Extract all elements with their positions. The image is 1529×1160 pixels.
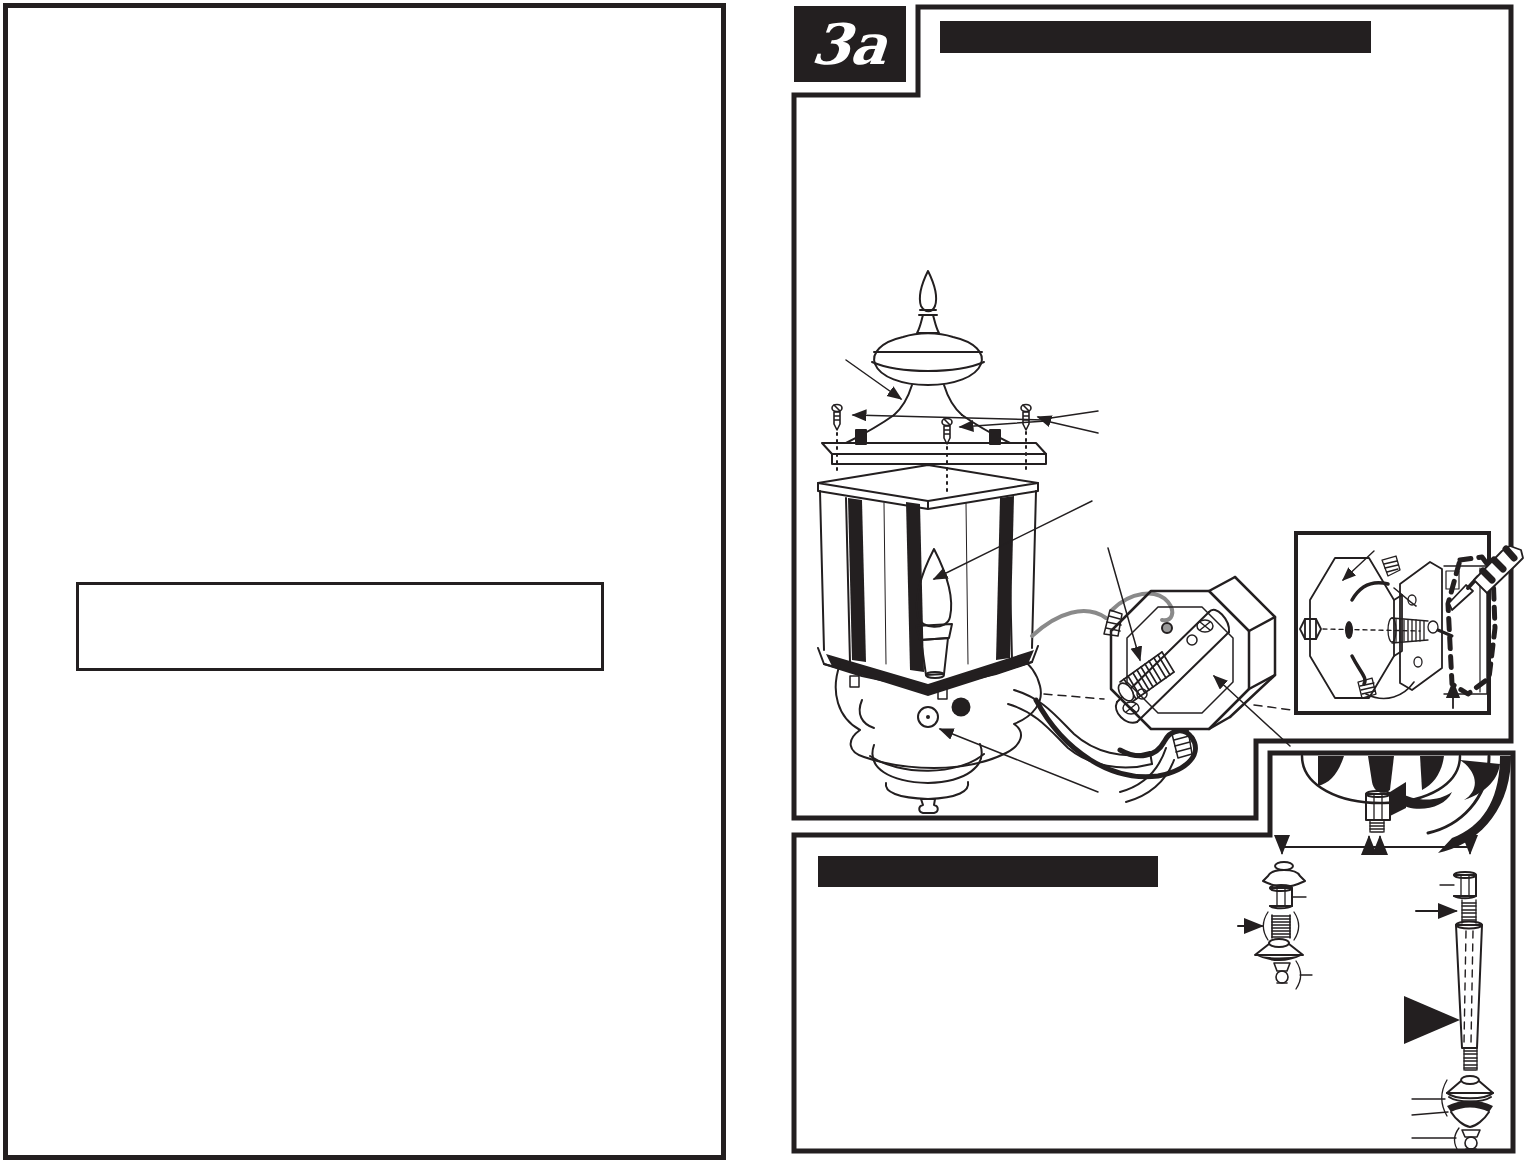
small-finial-icon xyxy=(1274,961,1312,989)
wire-hole xyxy=(952,698,971,717)
canopy-cap-icon xyxy=(1263,862,1305,887)
lantern-bottom-closeup-icon xyxy=(1302,756,1511,853)
step-badge: 3a xyxy=(794,6,906,82)
bottom-panel-border xyxy=(794,753,1513,1151)
stem-assembly-diagram xyxy=(1238,756,1511,1152)
top-section-header-bar xyxy=(940,21,1371,53)
lantern-body-icon xyxy=(818,465,1038,699)
extension-rod-icon xyxy=(1456,922,1482,1071)
hex-stem-icon xyxy=(1366,791,1390,820)
coupling-nut-icon xyxy=(1270,885,1306,908)
wire-nut-icon xyxy=(1104,610,1192,758)
manual-page: 3a xyxy=(0,0,1529,1160)
finial-icon xyxy=(917,271,939,333)
cap-screws-icon xyxy=(832,405,1031,495)
cone-washer-dark-icon xyxy=(1447,1101,1493,1127)
threaded-stud-icon xyxy=(1462,900,1476,923)
note-box xyxy=(76,582,604,671)
cone-washer-icon xyxy=(1255,939,1303,961)
leader-lines-bracket xyxy=(1044,548,1292,746)
cone-washer-icon xyxy=(1447,1076,1493,1102)
octagon-wall-plate-icon xyxy=(1111,577,1275,729)
coil-nipple-icon xyxy=(1264,912,1299,940)
left-page-panel xyxy=(3,3,726,1160)
leader-photocell xyxy=(940,729,1098,792)
coupling-nut-icon xyxy=(1440,872,1476,898)
wires-icon xyxy=(1032,594,1195,777)
small-finial-icon xyxy=(1455,1128,1481,1152)
lantern-exploded-view xyxy=(818,271,1292,813)
threaded-nipple-icon xyxy=(1115,652,1174,704)
bottom-section-header-bar xyxy=(818,856,1158,887)
cap-icon xyxy=(822,333,1046,464)
threaded-stud-icon xyxy=(1370,820,1384,832)
mounting-arm-icon xyxy=(1008,690,1174,802)
step-badge-label: 3a xyxy=(809,16,890,72)
